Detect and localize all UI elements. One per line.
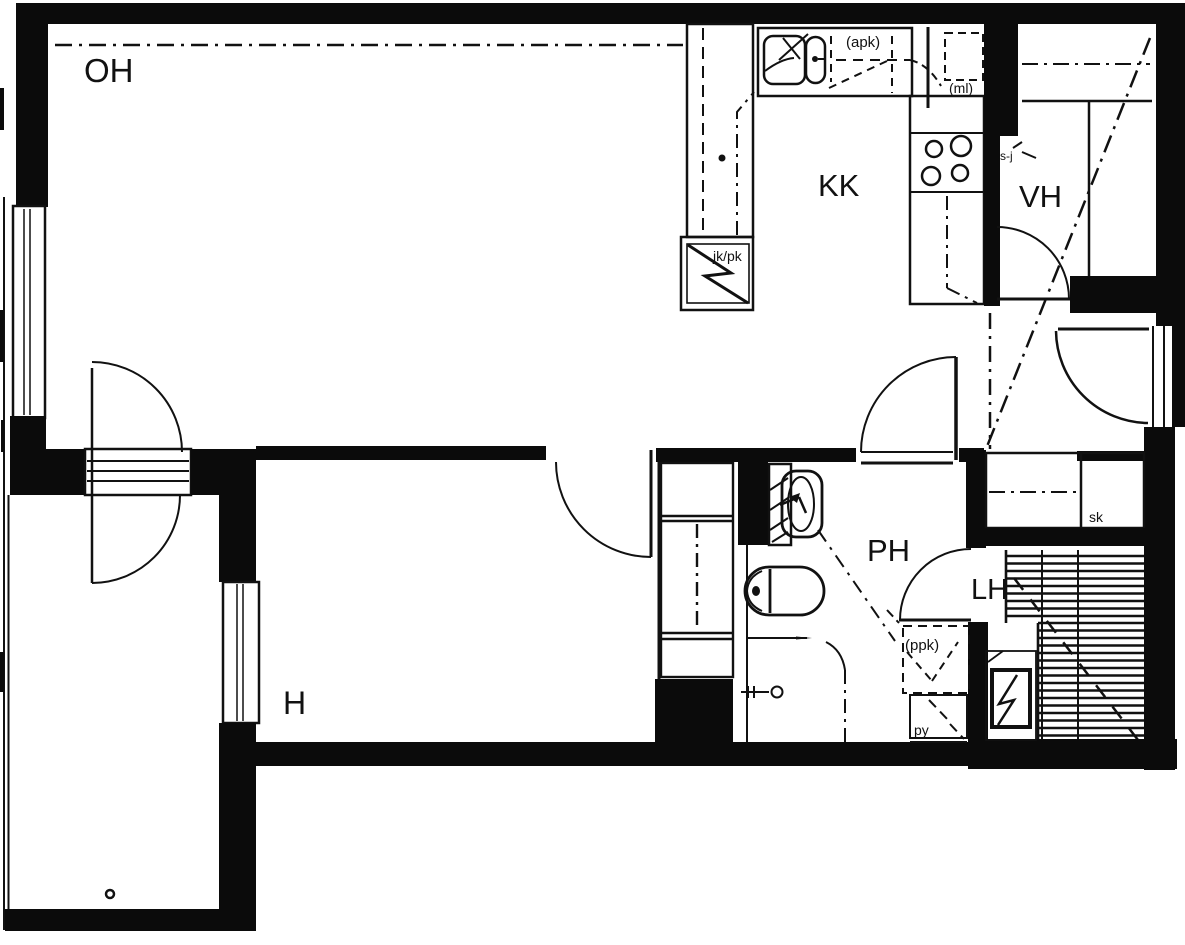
svg-text:s-j: s-j xyxy=(1000,149,1013,163)
svg-text:LH: LH xyxy=(971,574,1008,606)
svg-text:py: py xyxy=(914,722,929,738)
svg-text:H: H xyxy=(283,685,306,721)
svg-text:PH: PH xyxy=(867,533,910,568)
svg-text:(ml): (ml) xyxy=(949,80,973,96)
svg-text:(apk): (apk) xyxy=(846,34,880,51)
svg-text:jk/pk: jk/pk xyxy=(712,248,743,264)
svg-text:VH: VH xyxy=(1019,179,1062,214)
svg-text:(ppk): (ppk) xyxy=(905,637,939,654)
svg-text:OH: OH xyxy=(84,52,134,89)
svg-text:sk: sk xyxy=(1089,509,1104,525)
svg-text:KK: KK xyxy=(818,168,860,203)
